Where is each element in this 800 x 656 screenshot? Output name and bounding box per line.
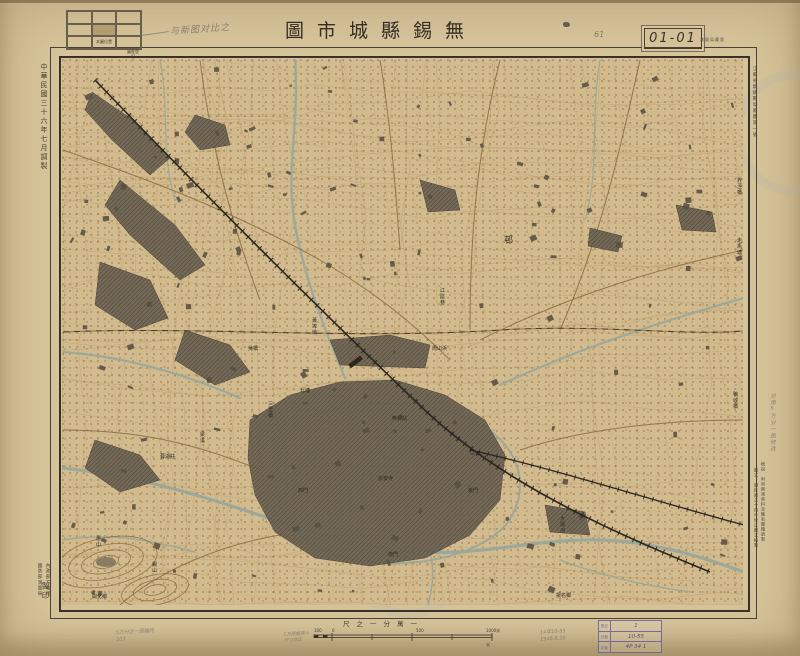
- frame-inner-line: [59, 56, 750, 612]
- index-diagram-grid: 本圖位置: [66, 10, 142, 50]
- index-cell: [92, 11, 117, 24]
- archive-mark: 圖歷登記: [127, 50, 139, 59]
- stamp-label: 分類: [599, 632, 610, 643]
- index-cell-current-sheet: [92, 24, 117, 37]
- library-accession-stamp: 登記 分類 存置 1 10-55 4P 34 1: [598, 620, 662, 653]
- scale-tick-1000: 1000米: [486, 627, 500, 633]
- survey-date-note: 中華民國三十六年七月調製: [39, 63, 49, 171]
- scale-tick-end: 米: [486, 641, 490, 647]
- pencil-leader-line: [141, 31, 169, 36]
- index-cell: [67, 24, 92, 37]
- index-cell: [116, 36, 141, 49]
- stamp-value: 1: [611, 621, 661, 632]
- ink-blot: [563, 22, 570, 27]
- map-sheet: 惠山錫山北塘三里橋吳橋黃埠墩周山浜無錫站崇安寺南門西門東門梁溪大運河蓉湖莊江陰巷…: [0, 0, 800, 656]
- stamp-label: 存置: [599, 642, 610, 652]
- sheet-number-box: 01-01: [644, 28, 702, 49]
- scale-tick-500: 500: [416, 628, 424, 633]
- stamp-value: 10-55: [611, 632, 661, 643]
- index-cell: [67, 36, 92, 49]
- index-cell-label: 本圖位置: [92, 36, 117, 49]
- publisher-seal: 製印: [40, 582, 51, 601]
- margin-note-zushiki: 圖式 遵民國三十四年修正圖式繪製: [753, 468, 759, 548]
- margin-note-gaisetsu: 概說 利用實測資料及舊有圖籍調製: [760, 462, 766, 542]
- index-cell: [116, 24, 141, 37]
- pencil-annotation-scale: 5万图幅挿入尺寸改正: [284, 631, 310, 645]
- index-cell: [67, 11, 92, 24]
- pencil-annotation-bottomleft: 5万分之一图幅内103: [116, 628, 155, 644]
- pencil-mark: 61: [594, 30, 604, 39]
- map-title: 圖市城縣錫無: [285, 16, 545, 43]
- scale-bar: 100 0 500 1000米 米: [300, 626, 520, 648]
- index-cell: [116, 11, 141, 24]
- pencil-annotation: 与新图对比之: [170, 20, 231, 37]
- series-title-note: 江蘇省無錫縣城廂圖第一號: [751, 66, 757, 138]
- stamp-label: 登記: [599, 621, 610, 632]
- pencil-annotation-date: 14年10-551946.6.30: [540, 628, 567, 643]
- stamp-value: 4P 34 1: [611, 642, 661, 652]
- classification-note: 測量局藏版: [700, 37, 725, 43]
- scale-tick-0: 0: [332, 628, 335, 633]
- pencil-annotation-right: 对照5万分一图修改: [768, 393, 776, 452]
- scale-tick-100: 100: [314, 628, 322, 633]
